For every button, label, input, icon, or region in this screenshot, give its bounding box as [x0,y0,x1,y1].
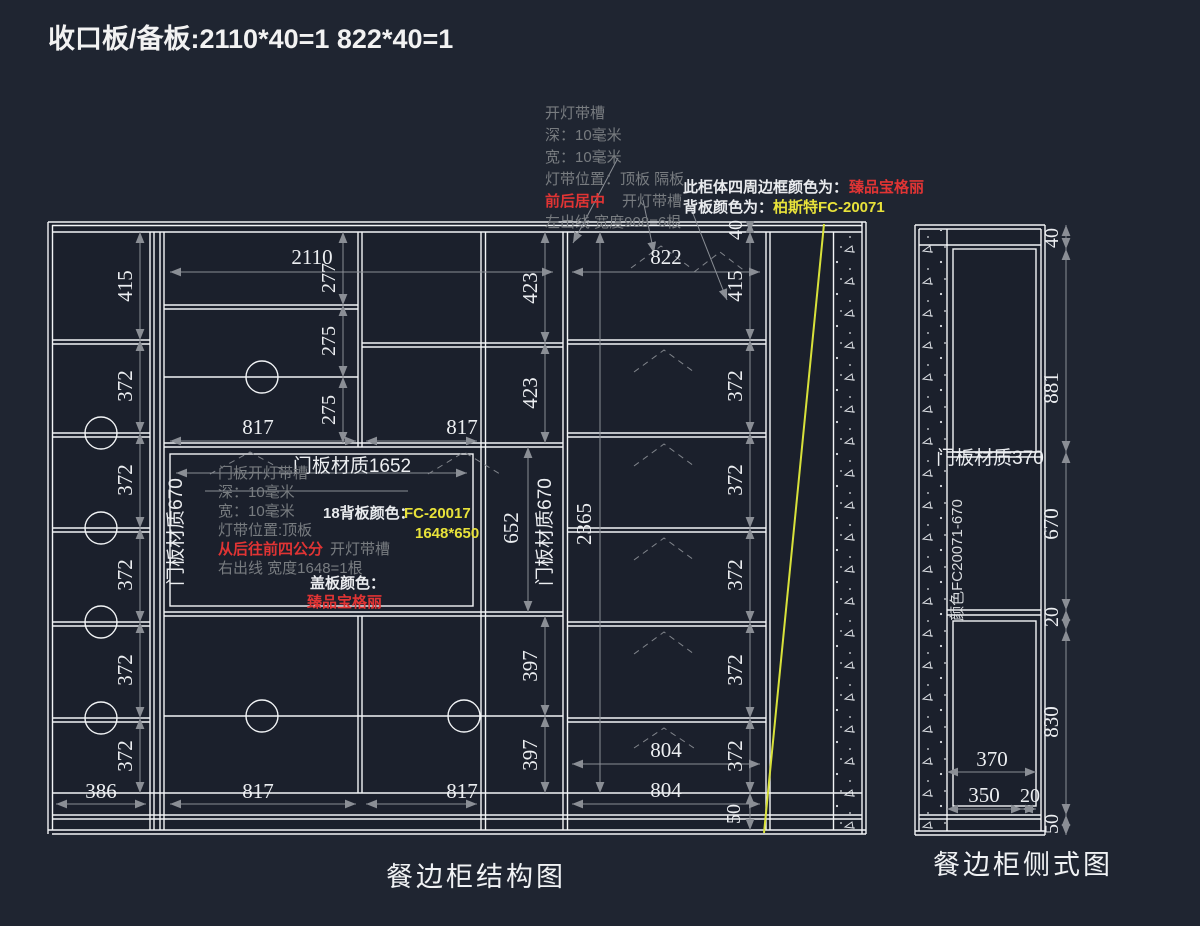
door-width-label: 门板材质1652 [293,455,411,477]
sheet-title: 收口板/备板:2110*40=1 822*40=1 [48,24,453,54]
note-line: 门板开灯带槽 [218,464,308,482]
dim-label: 372 [723,740,747,772]
cad-drawing: 收口板/备板:2110*40=1 822*40=1 [0,0,1200,926]
dim-label: 372 [723,654,747,686]
dim-label: 415 [723,270,747,302]
back-color-label: 背板颜色为： [683,198,773,216]
frame-color-label: 此柜体四周边框颜色为： [683,178,848,196]
note-line: 开灯带槽 [622,193,682,210]
dim-label: 830 [1039,706,1063,738]
dim-label: 386 [85,779,117,803]
dim-label: 397 [518,739,542,771]
note-line: 开灯带槽 [545,105,605,122]
dim-label: 372 [113,464,137,496]
note-line: 深：10毫米 [545,126,622,144]
side-door-material-label: 门板材质370 [936,447,1044,469]
dim-label: 275 [318,395,340,425]
dim-label: 652 [499,512,523,544]
dim-label: 372 [723,559,747,591]
dim-label: 50 [723,804,745,824]
dim-label: 350 [968,783,1000,807]
dim-label: 372 [723,464,747,496]
dim-label: 804 [650,738,682,762]
door-side-label: 门板材质670 [165,478,187,586]
dim-label: 20 [1041,607,1063,627]
dim-label: 397 [518,650,542,682]
dim-label: 372 [113,370,137,402]
dim-label: 275 [318,326,340,356]
dim-label: 50 [1041,814,1063,834]
dim-label: 372 [723,370,747,402]
note-line: 深：10毫米 [218,483,295,501]
note-line: 宽：10毫米 [218,502,295,520]
dim-label: 881 [1039,372,1063,404]
note-line: 左出线 宽度908=6根 [545,214,681,231]
frame-color-notes: 此柜体四周边框颜色为： 臻品宝格丽 背板颜色为： 柏斯特FC-20071 [683,178,924,216]
dim-label: 423 [518,377,542,409]
dim-label: 804 [650,778,682,802]
side-view-caption: 餐边柜侧式图 [933,850,1113,880]
dim-label: 415 [113,270,137,302]
note-line: 灯带位置：顶板 隔板 [545,170,684,188]
dim-label: 40 [725,220,747,240]
backboard-hatch-side [920,230,946,830]
dim-label: 370 [976,747,1008,771]
dim-label: 670 [1039,508,1063,540]
door-side-label: 门板材质670 [534,478,556,586]
dim-label: 817 [446,779,478,803]
backboard-hatch-front [834,233,861,829]
cover-color-value: 臻品宝格丽 [307,593,382,611]
side-color-label: 颜色FC20071-670 [949,499,966,621]
panel-color-value: FC-20017 [404,505,471,522]
dim-label: 372 [113,559,137,591]
dim-label: 277 [318,263,340,293]
dim-label: 2365 [572,503,596,545]
dim-label: 372 [113,654,137,686]
cad-canvas: 收口板/备板:2110*40=1 822*40=1 [0,0,1200,926]
dim-label: 423 [518,272,542,304]
note-line: 宽：10毫米 [545,148,622,166]
note-line: 灯带位置:顶板 [218,521,312,539]
frame-color-value: 臻品宝格丽 [849,178,924,196]
dim-label: 817 [242,779,274,803]
note-line: 开灯带槽 [330,541,390,558]
dim-label: 817 [242,415,274,439]
note-line-red: 从后往前四公分 [218,540,323,558]
dim-label: 372 [113,740,137,772]
lighting-notes: 开灯带槽 深：10毫米 宽：10毫米 灯带位置：顶板 隔板 前后居中 开灯带槽 … [545,105,684,231]
dim-label: 40 [1041,228,1063,248]
front-view-caption: 餐边柜结构图 [386,862,566,892]
dim-label: 822 [650,245,682,269]
panel-size-value: 1648*650 [415,525,479,542]
back-color-value: 柏斯特FC-20071 [773,198,885,216]
dim-label: 20 [1020,785,1040,807]
note-line-red: 前后居中 [545,192,605,210]
cover-color-label: 盖板颜色： [310,574,385,592]
dim-label: 817 [446,415,478,439]
panel-color-label: 18背板颜色： [323,504,415,522]
